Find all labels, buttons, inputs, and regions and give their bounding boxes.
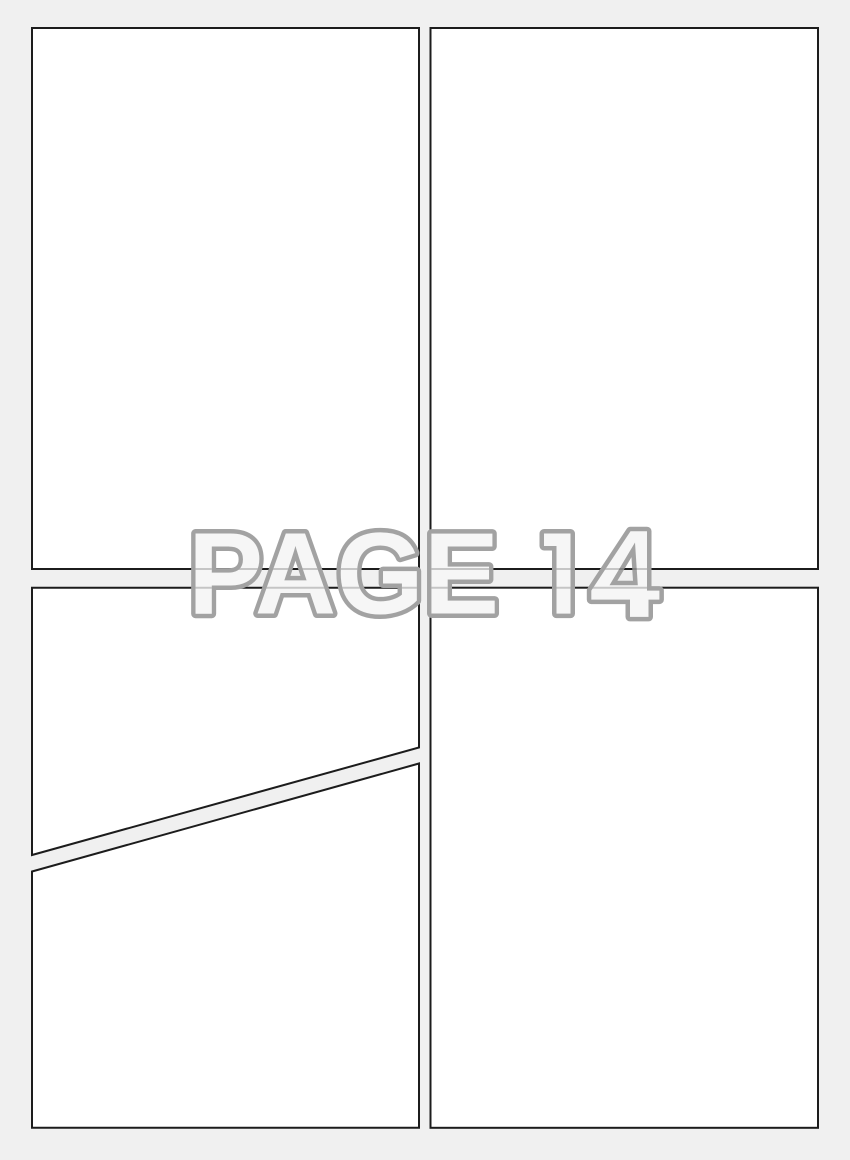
svg-text:PAGE: PAGE xyxy=(188,509,499,639)
